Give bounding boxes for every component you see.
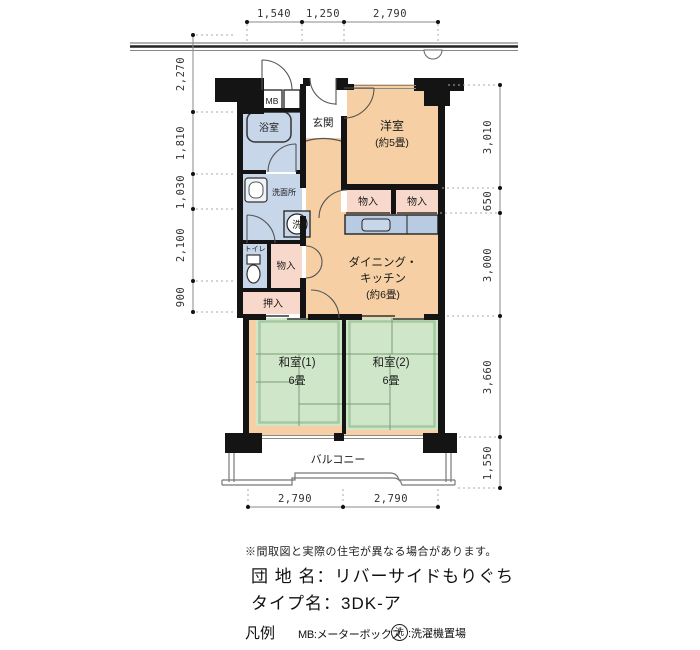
dim-top-1: 1,540 (257, 8, 291, 20)
wall-closet-divider (391, 190, 396, 214)
wall-top-w2 (416, 84, 440, 90)
toilet-bowl-icon (247, 265, 260, 283)
legend-heading: 凡例 (245, 625, 275, 642)
japanese-room-2-label: 和室(2) (372, 355, 409, 369)
oshiire-label: 押入 (263, 297, 283, 310)
wall-washroom-bottom (243, 240, 302, 244)
kitchen-counter (345, 215, 438, 234)
washroom-label: 洗面所 (272, 187, 296, 197)
floor-plan-page: MB 玄関 浴室 洗面所 トイレ 洗 物入 押入 物入 物入 洋室 (約5畳) … (0, 0, 700, 650)
corridor (130, 43, 518, 59)
dk-label-2: キッチン (360, 272, 406, 285)
japanese-room-1-size: 6畳 (288, 374, 305, 387)
wall-left-washitsu (243, 318, 249, 436)
wall-balcony-center-post (334, 433, 344, 441)
laundry-symbol-label: 洗 (292, 219, 302, 231)
dim-right-1: 3,010 (482, 120, 494, 154)
column-balcony-left (225, 433, 262, 453)
dk-label-1: ダイニング・ (349, 255, 418, 269)
type-name-value: 3DK-ア (341, 594, 402, 613)
dim-bottom-1: 2,790 (278, 493, 312, 505)
western-room-label: 洋室 (380, 118, 404, 133)
estate-name-line: 団 地 名：リバーサイドもりぐち (251, 562, 514, 587)
bathroom-floor (243, 108, 302, 172)
dim-left-3: 1,030 (175, 175, 187, 209)
dim-right-5: 1,550 (482, 446, 494, 480)
wall-bath-bottom-b (296, 170, 302, 174)
column-balcony-right (423, 433, 457, 453)
legend-row: 凡例 MB:メーターボックス 洗:洗濯機置場 (245, 622, 275, 643)
balcony-rail-outer (222, 478, 455, 485)
wall-western-left-b (341, 116, 347, 186)
type-name-label: タイプ名： (251, 594, 341, 613)
laundry-circle-icon: 洗 (391, 624, 408, 641)
western-room-size: (約5畳) (375, 136, 409, 149)
dim-top-3: 2,790 (373, 8, 407, 20)
toilet-label: トイレ (245, 246, 266, 253)
estate-name-value: リバーサイドもりぐち (334, 567, 514, 586)
dk-size: (約6畳) (366, 288, 400, 301)
dim-bottom-2: 2,790 (374, 493, 408, 505)
legend-laundry-item: 洗:洗濯機置場 (391, 624, 466, 641)
corridor-notch (424, 50, 442, 59)
floor-plan-drawing: MB 玄関 浴室 洗面所 トイレ 洗 物入 押入 物入 物入 洋室 (約5畳) … (0, 0, 700, 540)
estate-name-label: 団 地 名： (251, 567, 334, 586)
wall-closet-row-top (341, 184, 440, 190)
closet-upper-right-label: 物入 (407, 195, 427, 208)
wall-dk-bottom-c (424, 314, 445, 320)
japanese-room-2-size: 6畳 (382, 374, 399, 387)
wall-oshiire-top (243, 288, 302, 292)
wall-dk-bottom-a (243, 314, 266, 320)
dim-right-4: 3,660 (482, 360, 494, 394)
wall-right-outer (438, 84, 445, 440)
dim-top-2: 1,250 (306, 8, 340, 20)
wall-western-left-a (341, 84, 347, 88)
wall-bath-bottom-a (243, 170, 266, 174)
dim-left-5: 900 (175, 287, 187, 307)
kitchen-sink-icon (362, 219, 390, 231)
type-name-line: タイプ名：3DK-ア (251, 589, 402, 614)
dim-right-3: 3,000 (482, 248, 494, 282)
dim-left-4: 2,100 (175, 228, 187, 262)
sink-bowl-icon (249, 182, 263, 198)
balcony-rail-inner (222, 473, 455, 480)
wall-washitsu-divider (342, 320, 346, 434)
wall-mb-bottom (260, 108, 302, 112)
meter-box-door-arc (262, 60, 292, 90)
meter-box-label: MB (266, 96, 279, 106)
wall-left-outer (237, 102, 243, 318)
legend-laundry-text: :洗濯機置場 (408, 625, 466, 641)
closet-hall-label: 物入 (276, 260, 296, 272)
wall-hall-left-c (300, 278, 306, 318)
column-top-right-stub (424, 91, 450, 106)
dim-left-2: 1,810 (175, 126, 187, 160)
column-top-left (215, 78, 264, 102)
disclaimer-note: ※間取図と実際の住宅が異なる場合があります。 (245, 543, 497, 559)
wall-toilet-closet (267, 244, 271, 288)
japanese-room-1-label: 和室(1) (278, 355, 315, 369)
wall-dk-bottom-b (308, 314, 362, 320)
entrance-label: 玄関 (313, 116, 334, 129)
dim-left-1: 2,270 (175, 57, 187, 91)
legend-mb-item: MB:メーターボックス (298, 626, 402, 642)
toilet-tank-icon (247, 255, 260, 264)
balcony-label: バルコニー (311, 453, 366, 466)
dim-right-2: 650 (482, 191, 494, 211)
bathroom-label: 浴室 (259, 121, 279, 134)
closet-upper-left-label: 物入 (358, 195, 378, 208)
